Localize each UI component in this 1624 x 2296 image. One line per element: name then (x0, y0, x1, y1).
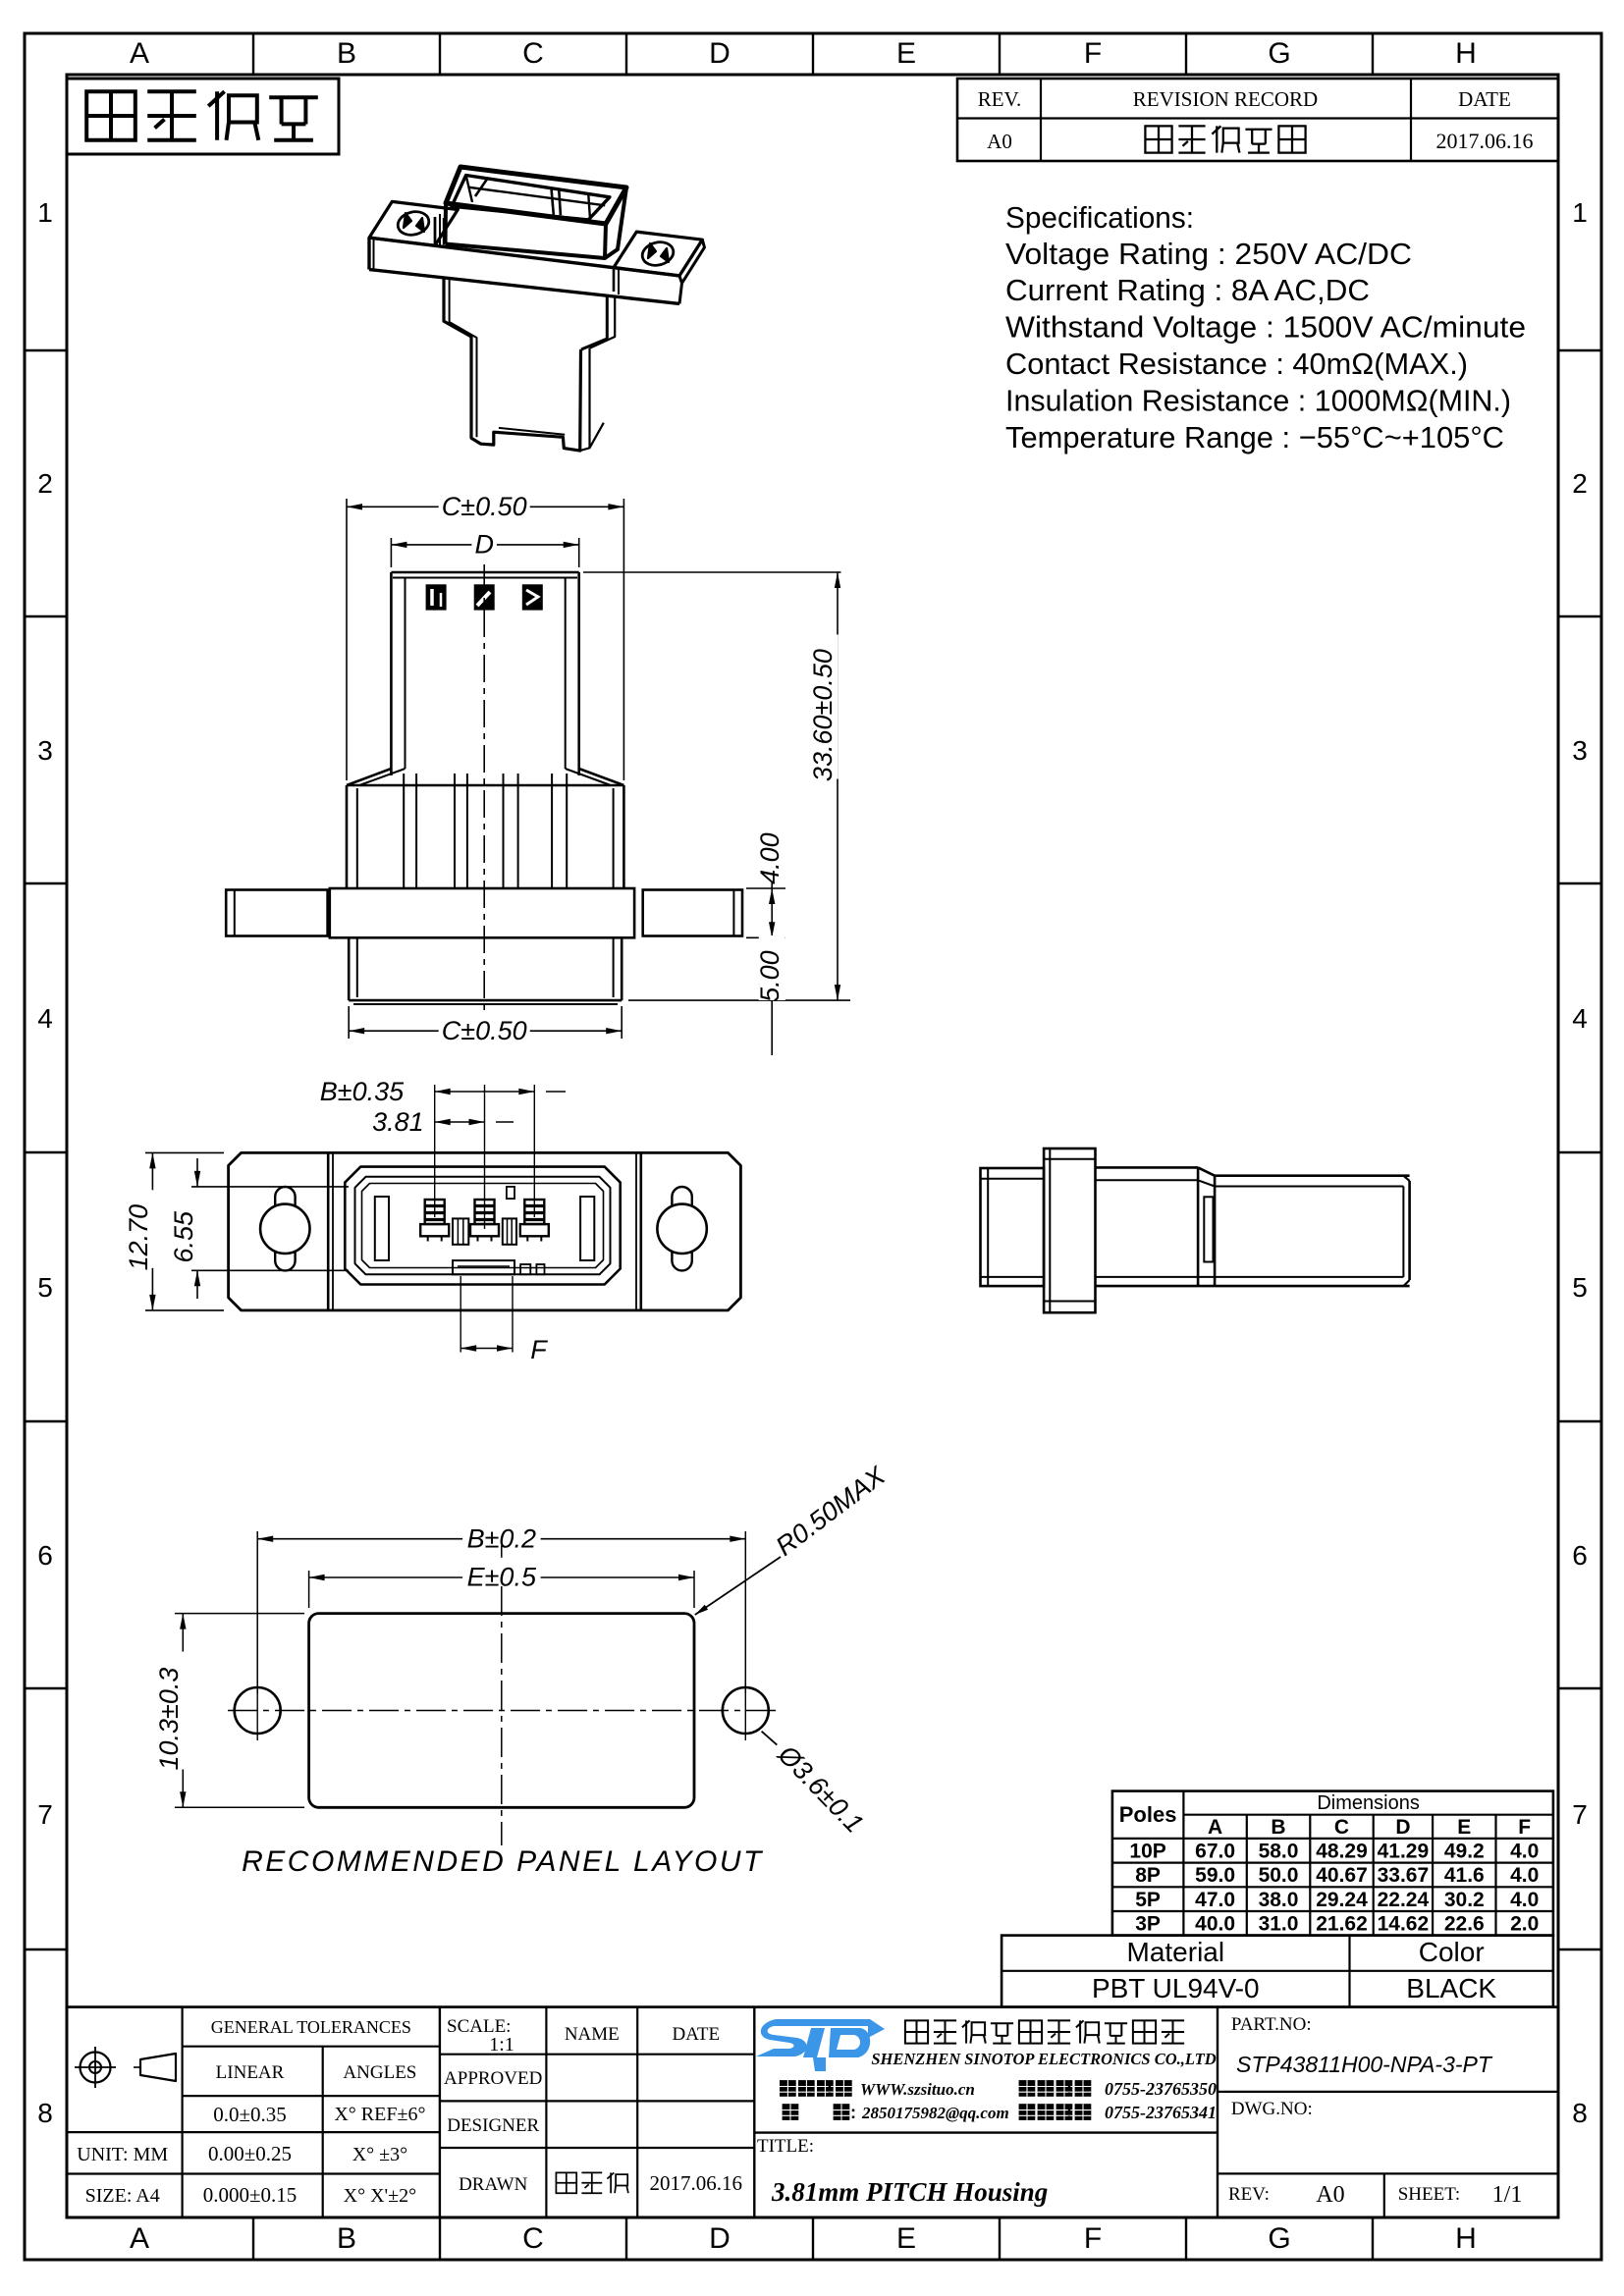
svg-text:2: 2 (1572, 468, 1588, 499)
svg-text:SHEET:: SHEET: (1398, 2184, 1460, 2205)
svg-text:F: F (1084, 37, 1102, 70)
svg-text:D: D (1395, 1816, 1410, 1839)
svg-text:X° X'±2°: X° X'±2° (344, 2185, 416, 2207)
svg-text:14.62: 14.62 (1378, 1913, 1430, 1936)
svg-text:8P: 8P (1135, 1864, 1161, 1887)
svg-text::: : (1066, 2103, 1072, 2122)
svg-text:5: 5 (37, 1272, 53, 1303)
svg-text:3: 3 (37, 735, 53, 766)
svg-text:STP43811H00-NPA-3-PT: STP43811H00-NPA-3-PT (1236, 2052, 1493, 2077)
svg-text:G: G (1268, 2222, 1290, 2255)
svg-text:DRAWN: DRAWN (459, 2174, 528, 2195)
svg-text:6: 6 (37, 1540, 53, 1571)
svg-text:Color: Color (1419, 1937, 1485, 1967)
svg-text:B: B (337, 37, 356, 70)
svg-text:22.6: 22.6 (1444, 1913, 1485, 1936)
svg-text:2017.06.16: 2017.06.16 (1436, 129, 1534, 153)
svg-text:12.70: 12.70 (124, 1204, 153, 1271)
svg-text:APPROVED: APPROVED (444, 2068, 542, 2089)
svg-text:A: A (1208, 1816, 1222, 1839)
svg-text:C±0.50: C±0.50 (442, 1016, 527, 1045)
svg-text:E: E (896, 2222, 916, 2255)
svg-text:8: 8 (1572, 2098, 1588, 2128)
svg-text:A0: A0 (987, 130, 1012, 153)
svg-text:0755-23765341: 0755-23765341 (1105, 2103, 1217, 2122)
svg-text:0755-23765350: 0755-23765350 (1105, 2079, 1217, 2099)
svg-text::: : (827, 2079, 833, 2099)
svg-text:21.62: 21.62 (1316, 1913, 1368, 1936)
svg-text:Dimensions: Dimensions (1317, 1792, 1419, 1814)
svg-text:B±0.35: B±0.35 (320, 1077, 405, 1106)
svg-text:67.0: 67.0 (1195, 1841, 1235, 1863)
svg-text:Insulation Resistance : 1000MΩ: Insulation Resistance : 1000MΩ(MIN.) (1005, 384, 1511, 418)
svg-text:F: F (1084, 2222, 1102, 2255)
svg-text:E: E (896, 37, 916, 70)
svg-text:40.0: 40.0 (1195, 1913, 1235, 1936)
svg-text:C±0.50: C±0.50 (442, 492, 527, 521)
svg-text:41.29: 41.29 (1378, 1841, 1430, 1863)
svg-text:1/1: 1/1 (1492, 2182, 1523, 2208)
svg-text:5.00: 5.00 (755, 950, 785, 1002)
svg-text:LINEAR: LINEAR (216, 2062, 285, 2083)
svg-text:Specifications:: Specifications: (1005, 200, 1194, 235)
svg-text:4.0: 4.0 (1510, 1889, 1539, 1911)
svg-text:0.000±0.15: 0.000±0.15 (203, 2183, 298, 2207)
svg-text:7: 7 (37, 1799, 53, 1830)
svg-text:2850175982@qq.com: 2850175982@qq.com (861, 2104, 1009, 2122)
svg-text:3.81: 3.81 (372, 1107, 424, 1137)
svg-text:3P: 3P (1135, 1913, 1161, 1936)
svg-text:38.0: 38.0 (1259, 1889, 1299, 1911)
svg-text:GENERAL TOLERANCES: GENERAL TOLERANCES (211, 2017, 411, 2037)
svg-text:D: D (709, 2222, 731, 2255)
svg-text:49.2: 49.2 (1444, 1841, 1485, 1863)
svg-text:UNIT: MM: UNIT: MM (77, 2144, 168, 2165)
svg-text:30.2: 30.2 (1444, 1889, 1485, 1911)
svg-text:E: E (1457, 1816, 1471, 1839)
svg-text:58.0: 58.0 (1259, 1841, 1299, 1863)
svg-text:4.0: 4.0 (1510, 1841, 1539, 1863)
svg-text:SIZE: A4: SIZE: A4 (85, 2185, 160, 2207)
svg-text:4.0: 4.0 (1510, 1864, 1539, 1887)
svg-text:D: D (474, 530, 494, 560)
svg-text:A: A (130, 37, 149, 70)
svg-text:C: C (522, 37, 544, 70)
svg-text:41.6: 41.6 (1444, 1864, 1485, 1887)
svg-text:REV:: REV: (1228, 2184, 1270, 2205)
svg-text:1: 1 (37, 197, 53, 228)
svg-text::: : (850, 2103, 856, 2122)
svg-text:DATE: DATE (1458, 87, 1511, 111)
svg-text:4.00: 4.00 (755, 832, 785, 884)
svg-text:PART.NO:: PART.NO: (1231, 2014, 1312, 2035)
svg-text:DWG.NO:: DWG.NO: (1231, 2099, 1313, 2119)
svg-text:2017.06.16: 2017.06.16 (650, 2171, 743, 2195)
svg-text:Withstand Voltage : 1500V AC/m: Withstand Voltage : 1500V AC/minute (1005, 310, 1526, 345)
svg-text:2.0: 2.0 (1510, 1913, 1539, 1936)
svg-text:E±0.5: E±0.5 (467, 1563, 537, 1592)
svg-text:6.55: 6.55 (169, 1210, 198, 1263)
svg-text:50.0: 50.0 (1259, 1864, 1299, 1887)
svg-text:0.00±0.25: 0.00±0.25 (208, 2142, 292, 2165)
svg-text:0.0±0.35: 0.0±0.35 (213, 2103, 287, 2126)
svg-text:Current Rating : 8A AC,DC: Current Rating : 8A AC,DC (1005, 273, 1370, 307)
svg-text:8: 8 (37, 2098, 53, 2128)
svg-text:A0: A0 (1316, 2182, 1344, 2208)
svg-text:C: C (522, 2222, 544, 2255)
svg-text:Material: Material (1127, 1937, 1225, 1967)
svg-text:48.29: 48.29 (1316, 1841, 1368, 1863)
svg-text:BLACK: BLACK (1406, 1973, 1496, 2003)
svg-text:REVISION RECORD: REVISION RECORD (1133, 87, 1318, 111)
svg-text:WWW.szsituo.cn: WWW.szsituo.cn (860, 2080, 975, 2099)
svg-text:TITLE:: TITLE: (757, 2136, 814, 2157)
svg-text:NAME: NAME (565, 2024, 620, 2045)
svg-text:Poles: Poles (1119, 1802, 1177, 1827)
svg-text:B: B (1271, 1816, 1285, 1839)
svg-text:B±0.2: B±0.2 (467, 1523, 536, 1553)
svg-text:10P: 10P (1129, 1841, 1165, 1863)
svg-text:DATE: DATE (673, 2024, 721, 2045)
svg-text:7: 7 (1572, 1799, 1588, 1830)
svg-text:1: 1 (1572, 197, 1588, 228)
svg-text:SHENZHEN SINOTOP ELECTRONICS C: SHENZHEN SINOTOP ELECTRONICS CO.,LTD (871, 2050, 1216, 2068)
svg-text:Voltage Rating : 250V AC/DC: Voltage Rating : 250V AC/DC (1005, 237, 1412, 271)
svg-text:4: 4 (1572, 1003, 1588, 1034)
svg-text:REV.: REV. (978, 87, 1022, 111)
svg-text:D: D (709, 37, 731, 70)
svg-text:X° ±3°: X° ±3° (352, 2144, 407, 2165)
svg-text:40.67: 40.67 (1316, 1864, 1368, 1887)
svg-text:5: 5 (1572, 1272, 1588, 1303)
svg-text:33.67: 33.67 (1378, 1864, 1430, 1887)
svg-text:G: G (1268, 37, 1290, 70)
svg-text:29.24: 29.24 (1316, 1889, 1368, 1911)
svg-text:X° REF±6°: X° REF±6° (334, 2104, 425, 2125)
svg-text:1:1: 1:1 (489, 2034, 514, 2056)
svg-text:F: F (1518, 1816, 1531, 1839)
svg-text:Temperature Range : −55°C~+105: Temperature Range : −55°C~+105°C (1005, 420, 1504, 454)
svg-text:B: B (337, 2222, 356, 2255)
svg-text:F: F (530, 1335, 548, 1364)
svg-text:47.0: 47.0 (1195, 1889, 1235, 1911)
svg-text:H: H (1455, 37, 1477, 70)
svg-text:10.3±0.3: 10.3±0.3 (154, 1668, 184, 1771)
svg-text:PBT UL94V-0: PBT UL94V-0 (1092, 1973, 1260, 2003)
svg-text:C: C (1334, 1816, 1349, 1839)
svg-text:59.0: 59.0 (1195, 1864, 1235, 1887)
svg-text:Contact Resistance : 40mΩ(MAX.: Contact Resistance : 40mΩ(MAX.) (1005, 347, 1468, 381)
svg-text:6: 6 (1572, 1540, 1588, 1571)
svg-text:3.81mm PITCH Housing: 3.81mm PITCH Housing (771, 2177, 1048, 2207)
svg-text:DESIGNER: DESIGNER (447, 2115, 539, 2136)
svg-text:33.60±0.50: 33.60±0.50 (808, 649, 838, 781)
svg-text:H: H (1455, 2222, 1477, 2255)
svg-text::: : (1066, 2079, 1072, 2099)
svg-text:4: 4 (37, 1003, 53, 1034)
svg-text:2: 2 (37, 468, 53, 499)
svg-text:ANGLES: ANGLES (343, 2062, 416, 2083)
svg-text:3: 3 (1572, 735, 1588, 766)
svg-text:31.0: 31.0 (1259, 1913, 1299, 1936)
svg-text:5P: 5P (1135, 1889, 1161, 1911)
svg-text:A: A (130, 2222, 149, 2255)
svg-text:RECOMMENDED PANEL LAYOUT: RECOMMENDED PANEL LAYOUT (242, 1845, 764, 1878)
svg-text:22.24: 22.24 (1378, 1889, 1430, 1911)
